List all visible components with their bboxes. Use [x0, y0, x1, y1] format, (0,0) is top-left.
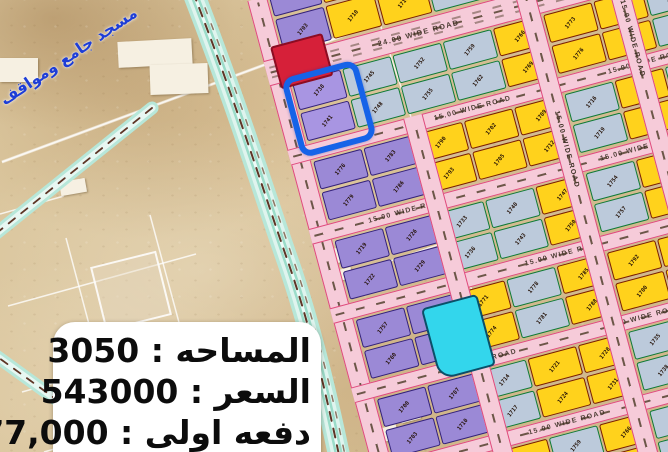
- plot-number: 1776: [573, 47, 586, 61]
- plot-number: 1719: [356, 241, 369, 255]
- info-area-line: المساحه : 3050: [63, 330, 311, 371]
- plot-number: 1757: [377, 321, 390, 335]
- plot-number: 1776: [335, 162, 348, 176]
- plot-number: 1726: [406, 228, 419, 242]
- plot-number: 1783: [385, 149, 398, 163]
- plot-number: 1700: [288, 0, 301, 1]
- plot-number: 1716: [586, 95, 599, 109]
- plot-number: 1743: [515, 232, 528, 246]
- plot-number: 1781: [536, 311, 549, 325]
- plot-number: 1759: [570, 439, 583, 452]
- plot-number: 1722: [364, 272, 377, 286]
- plot-number: 1786: [393, 180, 406, 194]
- plot-number: 1703: [406, 431, 419, 445]
- plot-number: 1755: [422, 87, 435, 101]
- plot-number: 1714: [499, 373, 512, 387]
- plot-number: 1700: [636, 284, 649, 298]
- plot-number: 1735: [649, 332, 662, 346]
- plot-number: 1759: [464, 43, 477, 57]
- plot-number: 1748: [372, 100, 385, 114]
- plot-number: 1707: [448, 386, 461, 400]
- plot-number: 1702: [485, 122, 498, 136]
- plot-number: 1762: [472, 73, 485, 87]
- plot-number: 1721: [549, 359, 562, 373]
- plot-number: 1740: [506, 201, 519, 215]
- building: [149, 63, 208, 95]
- plot-number: 1752: [414, 56, 427, 70]
- plot-number: 1757: [615, 205, 628, 219]
- plot-number: 1705: [494, 153, 507, 167]
- plot-number: 1700: [398, 400, 411, 414]
- plot-number: 1792: [628, 253, 641, 267]
- info-downpayment-line: دفعه اولى : 177,000: [63, 412, 311, 452]
- plot-number: 1710: [457, 417, 470, 431]
- info-price-line: السعر : 543000: [63, 371, 311, 412]
- plot-number: 1745: [364, 69, 377, 83]
- plot-number: 1717: [507, 404, 520, 418]
- plot-number: 1719: [594, 126, 607, 140]
- plot-number: 1717: [398, 0, 411, 10]
- plot-number: 1733: [456, 214, 469, 228]
- listing-map: 1700170717141721172817351742174917561703…: [0, 0, 668, 452]
- plot-number: 1778: [528, 280, 541, 294]
- plot-number: 1793: [443, 166, 456, 180]
- plot-number: 1729: [414, 259, 427, 273]
- plot-number: 1736: [465, 245, 478, 259]
- plot-number: 1703: [297, 23, 310, 37]
- plot-number: 1724: [557, 390, 570, 404]
- plot-number: 1790: [435, 135, 448, 149]
- plot-number: 1754: [607, 174, 620, 188]
- plot-number: 1738: [658, 363, 668, 377]
- plot-number: 1779: [343, 193, 356, 207]
- plot-number: 1710: [347, 9, 360, 23]
- plot-number: 1760: [385, 351, 398, 365]
- info-box: المساحه : 3050 السعر : 543000 دفعه اولى …: [53, 322, 321, 452]
- plot-number: 1773: [564, 16, 577, 30]
